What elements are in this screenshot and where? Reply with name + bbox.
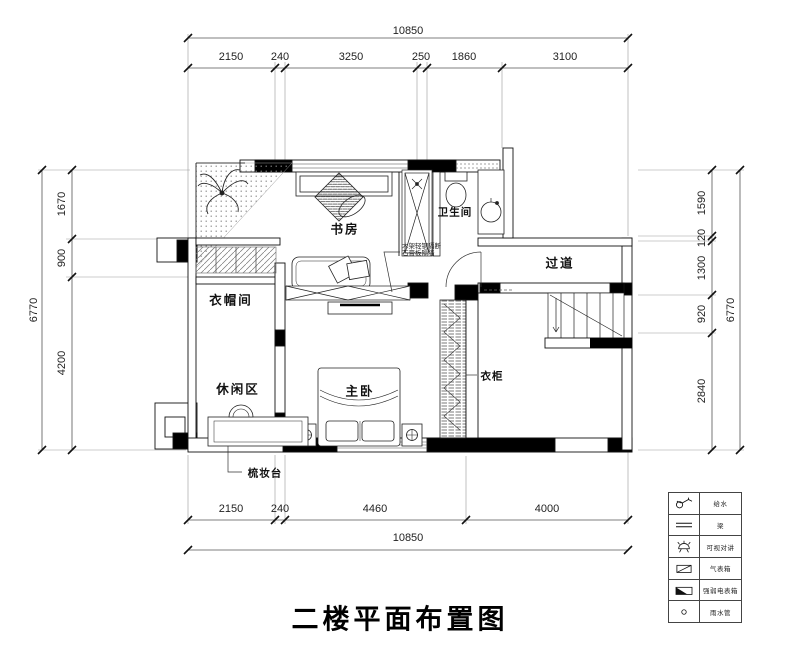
gas-meter-box-icon	[669, 558, 700, 579]
partition-annotation-line1: 木架轻钢隔断	[402, 243, 441, 250]
drawing-title: 二楼平面布置图	[292, 598, 509, 637]
legend-label: 梁	[700, 515, 741, 536]
legend-label: 给水	[700, 493, 741, 514]
dim-left-seg-0: 1670	[56, 192, 68, 216]
dim-top-seg-5: 3100	[553, 51, 577, 63]
stairs	[545, 293, 632, 348]
dim-left-total: 6770	[28, 298, 40, 322]
legend-row: 雨水管	[669, 601, 741, 622]
floorplan-page: 10850 2150 240 3250 250 1860 3100 2150 2…	[0, 0, 800, 661]
dim-top-seg-2: 3250	[339, 51, 363, 63]
rain-pipe-icon	[669, 601, 700, 622]
power-meter-box-icon	[669, 580, 700, 601]
dim-left-seg-1: 900	[56, 249, 68, 267]
beam-icon	[669, 515, 700, 536]
dim-bottom-seg-3: 4000	[535, 503, 559, 515]
dim-top-seg-1: 240	[271, 51, 289, 63]
faucet-icon	[669, 493, 700, 514]
cloakroom-closet	[196, 247, 276, 273]
partition-annotation-line2: 石膏板隔墙	[402, 250, 441, 257]
dim-right-total: 6770	[725, 298, 737, 322]
room-label-cloakroom: 衣帽间	[209, 290, 253, 309]
video-intercom-icon	[669, 536, 700, 557]
toilet	[445, 172, 467, 207]
legend-row: 强弱电表箱	[669, 580, 741, 602]
legend-row: 气表箱	[669, 558, 741, 580]
room-label-study: 书房	[330, 219, 359, 238]
partition-annotation: 木架轻钢隔断 石膏板隔墙	[402, 243, 441, 257]
dim-bottom-seg-0: 2150	[219, 503, 243, 515]
dim-top-seg-0: 2150	[219, 51, 243, 63]
legend-label: 气表箱	[700, 558, 741, 579]
dim-right-seg-0: 1590	[696, 191, 708, 215]
room-label-leisure-area: 休闲区	[216, 379, 260, 398]
room-label-corridor: 过道	[545, 253, 574, 272]
legend-label: 强弱电表箱	[700, 580, 741, 601]
dim-bottom-seg-1: 240	[271, 503, 289, 515]
dim-right-seg-4: 2840	[696, 379, 708, 403]
legend-table: 给水 梁 可视对讲 气表箱 强弱电表箱	[668, 492, 742, 623]
study-daybed	[292, 256, 370, 290]
legend-row: 梁	[669, 515, 741, 537]
dim-top-seg-3: 250	[412, 51, 430, 63]
room-label-dressing-table: 梳妆台	[248, 466, 283, 481]
wardrobe-cabinet	[440, 300, 478, 438]
dressing-table	[208, 405, 308, 446]
legend-row: 可视对讲	[669, 536, 741, 558]
legend-label: 雨水管	[700, 601, 741, 622]
dim-right-seg-2: 1300	[696, 256, 708, 280]
dim-bottom-seg-2: 4460	[363, 503, 387, 515]
dim-bottom-total: 10850	[393, 532, 424, 544]
wash-basin	[478, 170, 504, 234]
dim-top-total: 10850	[393, 25, 424, 37]
room-label-wardrobe: 衣柜	[481, 369, 504, 384]
legend-row: 给水	[669, 493, 741, 515]
dim-top-seg-4: 1860	[452, 51, 476, 63]
dim-right-seg-1: 120	[696, 229, 708, 247]
tv-console	[328, 302, 392, 314]
legend-label: 可视对讲	[700, 536, 741, 557]
room-label-bathroom: 卫生间	[438, 205, 473, 220]
room-label-master-bedroom: 主卧	[345, 381, 374, 400]
dim-right-seg-3: 920	[696, 305, 708, 323]
dim-left-seg-2: 4200	[56, 351, 68, 375]
